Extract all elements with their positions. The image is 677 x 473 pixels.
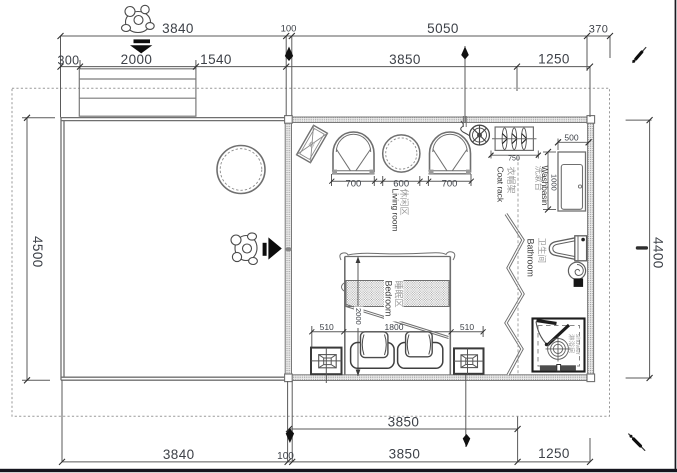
svg-text:衣帽架: 衣帽架	[506, 167, 517, 194]
svg-text:Bathroom: Bathroom	[526, 239, 536, 277]
svg-text:300: 300	[57, 54, 79, 68]
svg-text:Bedroom: Bedroom	[384, 281, 394, 317]
svg-text:睡眠区: 睡眠区	[394, 281, 405, 308]
svg-text:4400: 4400	[651, 237, 666, 269]
svg-text:700: 700	[442, 179, 458, 190]
svg-text:1250: 1250	[538, 446, 570, 461]
svg-text:5050: 5050	[427, 21, 459, 36]
svg-text:510: 510	[460, 322, 474, 332]
svg-text:Living room: Living room	[391, 189, 401, 232]
svg-text:3850: 3850	[388, 414, 420, 429]
svg-text:2000: 2000	[354, 308, 363, 325]
svg-text:370: 370	[589, 24, 609, 36]
svg-text:100: 100	[281, 24, 297, 35]
svg-text:100: 100	[277, 451, 294, 462]
svg-text:2000: 2000	[121, 52, 153, 67]
svg-text:1540: 1540	[200, 52, 232, 67]
svg-text:1800: 1800	[385, 322, 404, 332]
svg-text:shower: shower	[574, 334, 581, 356]
svg-text:500: 500	[564, 132, 578, 142]
svg-text:Washbasin: Washbasin	[540, 166, 550, 206]
svg-text:3840: 3840	[162, 21, 194, 36]
svg-text:510: 510	[320, 322, 334, 332]
svg-text:4500: 4500	[30, 236, 45, 268]
svg-text:1250: 1250	[538, 52, 570, 67]
svg-text:3840: 3840	[163, 447, 195, 462]
svg-text:卫生间: 卫生间	[537, 238, 547, 264]
svg-text:700: 700	[345, 179, 361, 190]
svg-text:3850: 3850	[389, 447, 421, 462]
svg-text:Coat rack: Coat rack	[496, 167, 506, 203]
svg-text:3850: 3850	[389, 52, 421, 67]
